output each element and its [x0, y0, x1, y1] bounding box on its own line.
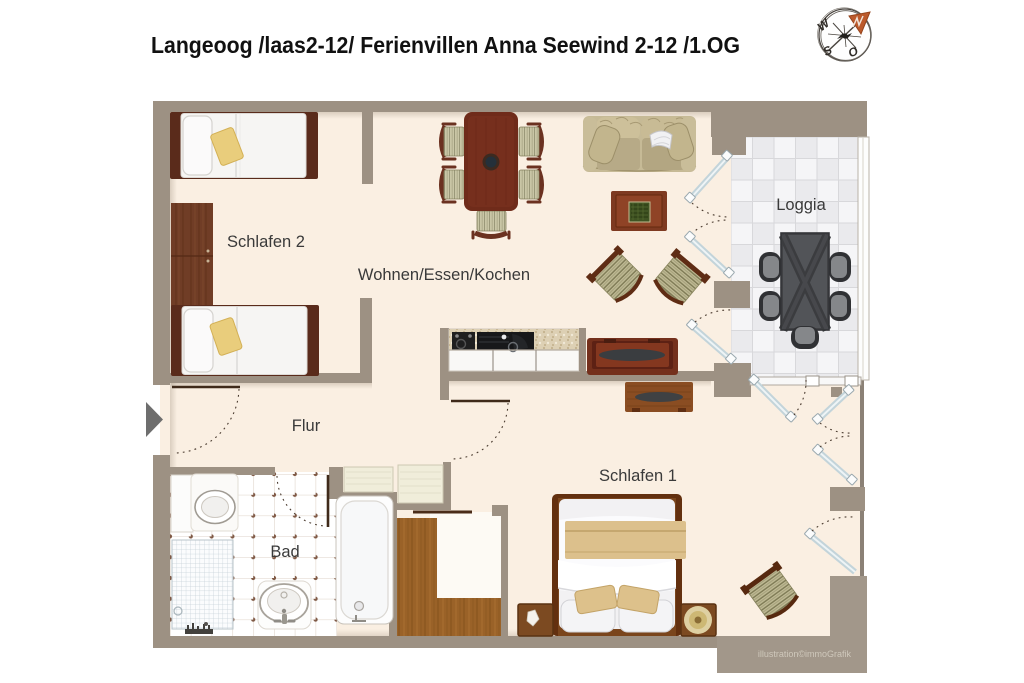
svg-text:Bad: Bad — [270, 543, 299, 561]
svg-text:Wohnen/Essen/Kochen: Wohnen/Essen/Kochen — [358, 266, 530, 284]
svg-text:Schlafen 1: Schlafen 1 — [599, 467, 677, 485]
svg-text:Langeoog /laas2-12/ Ferienvill: Langeoog /laas2-12/ Ferienvillen Anna Se… — [151, 32, 740, 58]
svg-text:Schlafen 2: Schlafen 2 — [227, 233, 305, 251]
svg-text:Loggia: Loggia — [776, 196, 826, 214]
svg-text:Flur: Flur — [292, 417, 321, 435]
svg-text:illustration©immoGrafik: illustration©immoGrafik — [758, 649, 852, 659]
